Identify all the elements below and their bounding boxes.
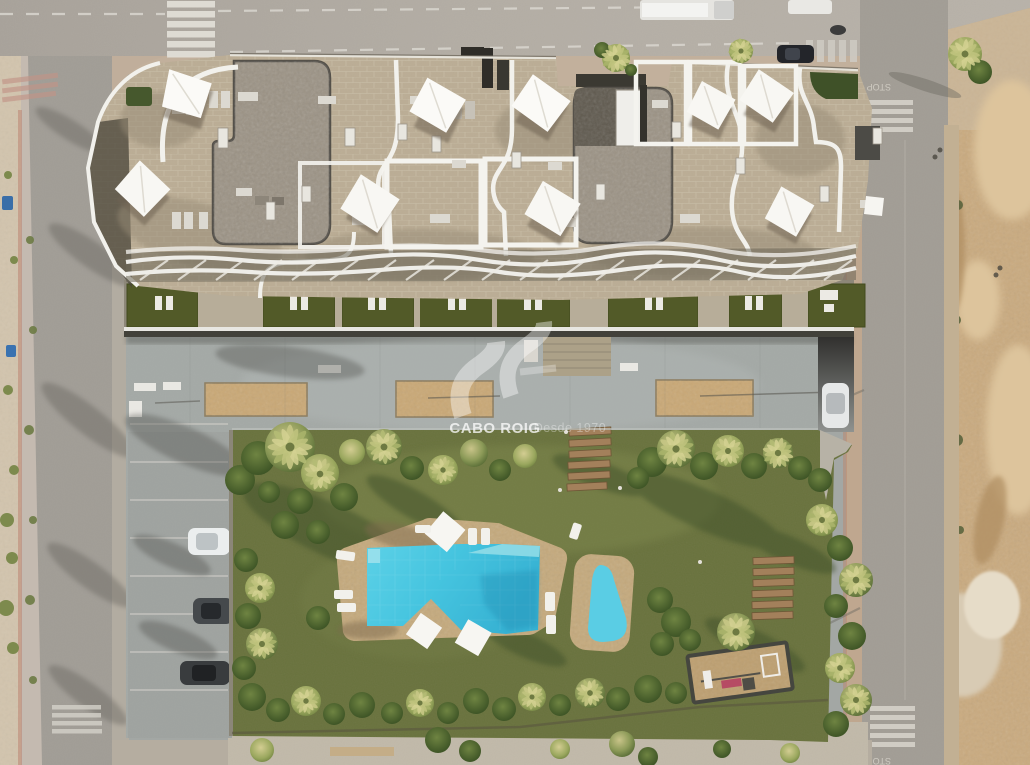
svg-text:STOP: STOP bbox=[867, 82, 891, 92]
svg-text:CABO ROIG: CABO ROIG bbox=[449, 420, 540, 437]
svg-text:Desde 1970: Desde 1970 bbox=[534, 421, 606, 435]
